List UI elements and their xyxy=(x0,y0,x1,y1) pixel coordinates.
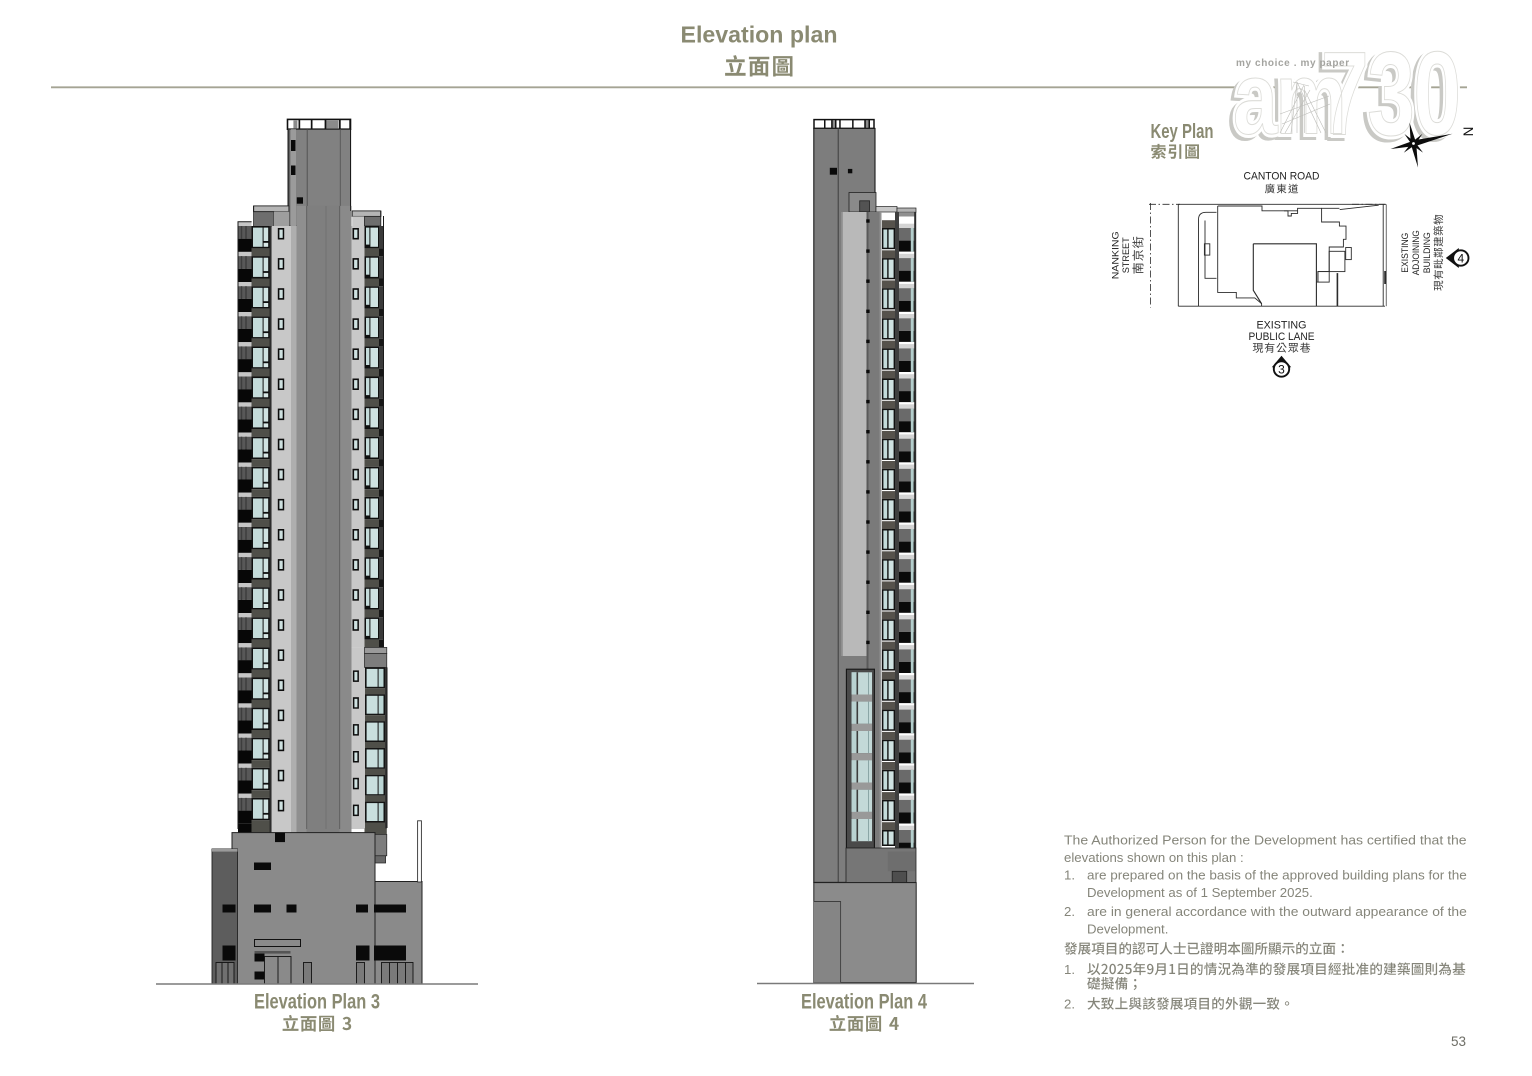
svg-text:EXISTING: EXISTING xyxy=(1257,319,1307,331)
svg-text:53: 53 xyxy=(1451,1034,1466,1049)
svg-text:2.: 2. xyxy=(1064,904,1075,919)
svg-text:The Authorized Person for the: The Authorized Person for the Developmen… xyxy=(1064,832,1467,847)
svg-text:STREET: STREET xyxy=(1121,237,1132,273)
svg-text:EXISTING: EXISTING xyxy=(1400,233,1411,273)
svg-text:ADJOINING: ADJOINING xyxy=(1411,230,1422,275)
svg-text:CANTON ROAD: CANTON ROAD xyxy=(1244,171,1320,183)
svg-text:Elevation Plan 3: Elevation Plan 3 xyxy=(254,991,380,1014)
svg-text:4: 4 xyxy=(1457,251,1464,265)
svg-text:1.: 1. xyxy=(1064,867,1075,882)
svg-text:N: N xyxy=(1461,127,1476,137)
svg-text:are in general accordance with: are in general accordance with the outwa… xyxy=(1087,904,1467,919)
svg-text:2.: 2. xyxy=(1064,997,1075,1012)
svg-text:are prepared on the basis of t: are prepared on the basis of the approve… xyxy=(1087,867,1467,882)
svg-text:Development.: Development. xyxy=(1087,921,1168,936)
svg-text:730: 730 xyxy=(1321,27,1460,160)
svg-text:Development as of 1 September: Development as of 1 September 2025. xyxy=(1087,885,1313,900)
svg-text:BUILDING: BUILDING xyxy=(1422,232,1433,273)
svg-text:Elevation plan: Elevation plan xyxy=(681,22,838,48)
svg-text:PUBLIC LANE: PUBLIC LANE xyxy=(1249,331,1315,343)
svg-text:1.: 1. xyxy=(1064,962,1075,977)
svg-text:elevations shown on this plan: elevations shown on this plan : xyxy=(1064,850,1244,865)
svg-text:NANKING: NANKING xyxy=(1110,231,1121,279)
svg-text:Key Plan: Key Plan xyxy=(1151,120,1214,143)
svg-text:my choice . my paper: my choice . my paper xyxy=(1236,58,1350,69)
svg-text:Elevation Plan 4: Elevation Plan 4 xyxy=(801,991,927,1014)
svg-text:3: 3 xyxy=(1278,363,1285,377)
